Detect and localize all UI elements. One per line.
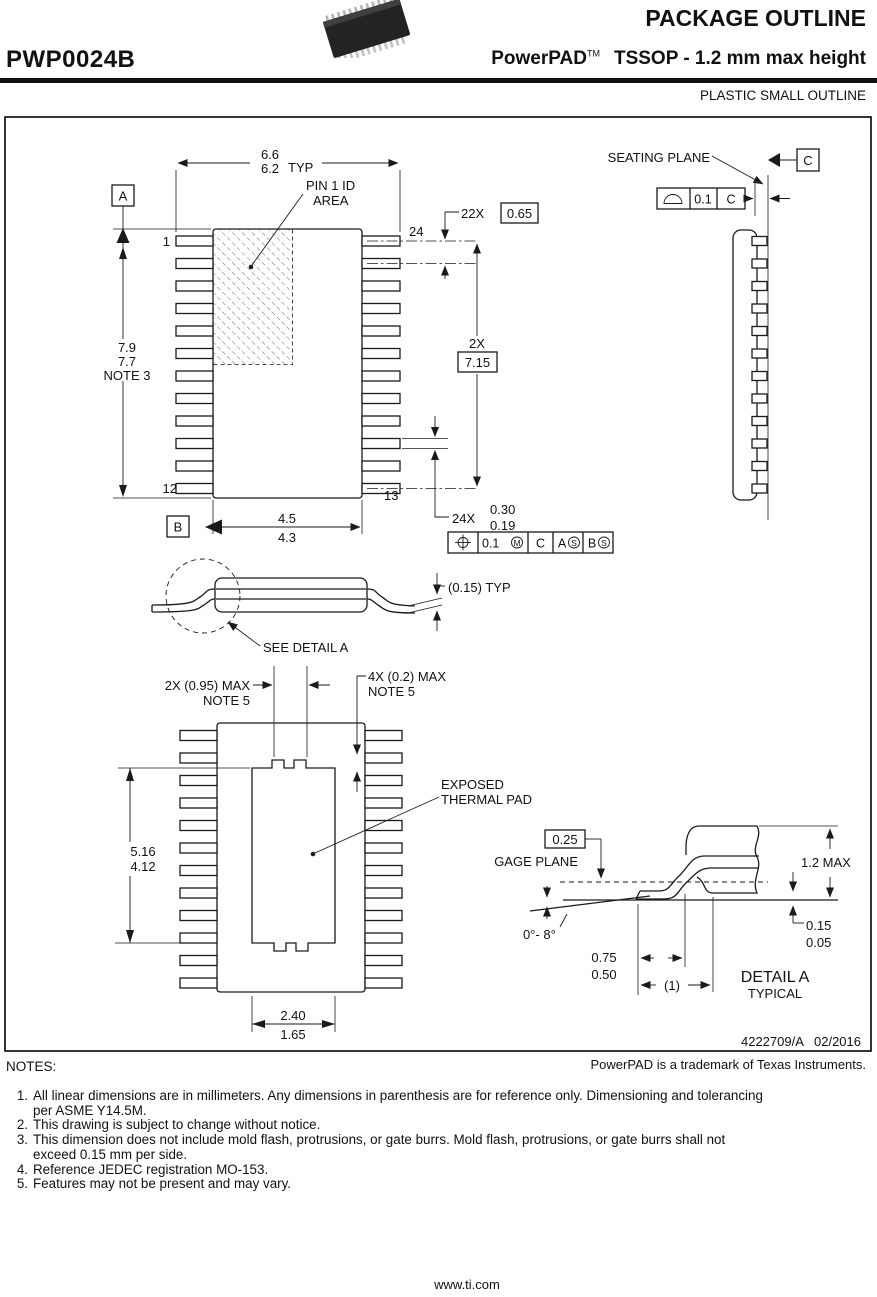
svg-text:6.6: 6.6 <box>261 147 279 162</box>
svg-text:0.1: 0.1 <box>482 537 499 551</box>
svg-text:GAGE PLANE: GAGE PLANE <box>494 854 578 869</box>
svg-text:THERMAL PAD: THERMAL PAD <box>441 792 532 807</box>
svg-text:C: C <box>726 193 735 207</box>
svg-text:B: B <box>174 520 183 535</box>
svg-text:B: B <box>588 537 596 551</box>
svg-text:(1): (1) <box>664 978 680 993</box>
svg-text:AREA: AREA <box>313 193 349 208</box>
svg-text:2X: 2X <box>469 336 485 351</box>
website-link[interactable]: www.ti.com <box>392 1277 542 1292</box>
svg-text:A: A <box>558 537 567 551</box>
dim-gage-offset: 0.25 GAGE PLANE <box>494 830 601 878</box>
position-symbol <box>455 535 471 551</box>
note-row: 5.Features may not be present and may va… <box>8 1177 853 1192</box>
svg-text:4.3: 4.3 <box>278 530 296 545</box>
note-row: 2.This drawing is subject to change with… <box>8 1118 853 1133</box>
svg-text:7.9: 7.9 <box>118 340 136 355</box>
see-detail-a-label: SEE DETAIL A <box>228 622 349 655</box>
svg-text:EXPOSED: EXPOSED <box>441 777 504 792</box>
note-row: 1.All linear dimensions are in millimete… <box>8 1089 853 1104</box>
svg-text:NOTE 5: NOTE 5 <box>368 684 415 699</box>
dim-lead-thickness: (0.15) TYP <box>437 573 511 631</box>
svg-text:A: A <box>119 189 128 204</box>
end-view: SEATING PLANE C 0.1 C <box>608 149 819 520</box>
note-row: 3.This dimension does not include mold f… <box>8 1133 853 1148</box>
svg-text:2.40: 2.40 <box>280 1008 305 1023</box>
side-view: SEE DETAIL A (0.15) TYP <box>152 559 511 655</box>
dim-ref-length: (1) <box>641 897 713 993</box>
note-row: exceed 0.15 mm per side. <box>8 1148 853 1163</box>
top-view: 6.6 6.2 TYP PIN 1 ID AREA A 7.9 7.7 NOTE… <box>104 147 613 553</box>
detail-a-subtitle: TYPICAL <box>748 986 802 1001</box>
notes-list: 1.All linear dimensions are in millimete… <box>8 1089 853 1192</box>
svg-text:1.2 MAX: 1.2 MAX <box>801 855 851 870</box>
svg-text:4X (0.2) MAX: 4X (0.2) MAX <box>368 669 446 684</box>
svg-text:0.05: 0.05 <box>806 935 831 950</box>
modifier-s-icon: S <box>601 538 607 548</box>
pin-1-label: 1 <box>163 234 170 249</box>
svg-text:2X (0.95) MAX: 2X (0.95) MAX <box>165 678 251 693</box>
package-outline-page: { "header": { "drawing_code": "PWP0024B"… <box>0 0 877 1297</box>
seating-plane-label: SEATING PLANE <box>608 150 763 184</box>
datum-a: A 7.9 7.7 NOTE 3 <box>104 185 211 498</box>
detail-a-view: 0.25 GAGE PLANE 0°- 8° 1.2 MAX 0.15 0.05 <box>494 826 851 1001</box>
modifier-s-icon: S <box>571 538 577 548</box>
svg-text:C: C <box>803 153 812 168</box>
position-tolerance-frame: 0.1 M C A S B S <box>448 532 613 553</box>
dim-height: 1.2 MAX <box>759 826 851 897</box>
dim-pad-width: 2.40 1.65 <box>252 996 335 1042</box>
svg-text:0.50: 0.50 <box>591 967 616 982</box>
svg-text:NOTE 5: NOTE 5 <box>203 693 250 708</box>
svg-text:PIN 1 ID: PIN 1 ID <box>306 178 355 193</box>
svg-text:0.1: 0.1 <box>694 193 711 207</box>
top-view-right-pins <box>362 236 400 494</box>
svg-text:22X: 22X <box>461 206 484 221</box>
note-row: per ASME Y14.5M. <box>8 1104 853 1119</box>
dim-standoff: 0.15 0.05 <box>793 872 831 950</box>
svg-text:7.7: 7.7 <box>118 354 136 369</box>
note-row: 4.Reference JEDEC registration MO-153. <box>8 1163 853 1178</box>
doc-number: 4222709/A 02/2016 <box>741 1034 861 1049</box>
svg-text:5.16: 5.16 <box>130 844 155 859</box>
dim-lead-span: 2X 7.15 <box>458 244 497 486</box>
svg-text:0.75: 0.75 <box>591 950 616 965</box>
bottom-view-right-pins <box>365 731 402 989</box>
flatness-tolerance-frame: 0.1 C <box>657 188 790 209</box>
svg-text:TYP: TYP <box>288 160 313 175</box>
svg-text:SEE DETAIL A: SEE DETAIL A <box>263 640 349 655</box>
svg-text:24X: 24X <box>452 511 475 526</box>
svg-text:1.65: 1.65 <box>280 1027 305 1042</box>
dim-lead-width: 24X 0.30 0.19 <box>402 416 515 533</box>
svg-text:4.12: 4.12 <box>130 859 155 874</box>
top-view-left-pins <box>176 236 213 494</box>
flatness-symbol <box>664 195 682 204</box>
bottom-view-left-pins <box>180 731 217 989</box>
trademark-line: PowerPAD is a trademark of Texas Instrum… <box>590 1057 866 1072</box>
datum-c: C <box>768 149 819 171</box>
pin-12-label: 12 <box>163 481 177 496</box>
svg-text:7.15: 7.15 <box>465 355 490 370</box>
pin-24-label: 24 <box>409 224 423 239</box>
detail-a-title: DETAIL A <box>741 969 810 986</box>
svg-text:0°- 8°: 0°- 8° <box>523 927 556 942</box>
bottom-view: EXPOSED THERMAL PAD 2X (0.95) MAX NOTE 5… <box>115 666 532 1042</box>
svg-text:0.30: 0.30 <box>490 502 515 517</box>
dim-angle: 0°- 8° <box>523 886 567 942</box>
svg-text:0.65: 0.65 <box>507 206 532 221</box>
svg-text:(0.15) TYP: (0.15) TYP <box>448 580 511 595</box>
pin-13-label: 13 <box>384 488 398 503</box>
exposed-thermal-pad-outline <box>252 760 335 951</box>
svg-text:0.25: 0.25 <box>552 832 577 847</box>
svg-text:0.15: 0.15 <box>806 918 831 933</box>
modifier-m-icon: M <box>513 538 520 548</box>
datum-b: B 4.5 4.3 <box>167 500 362 545</box>
svg-text:C: C <box>536 537 545 551</box>
svg-text:NOTE 3: NOTE 3 <box>104 368 151 383</box>
svg-text:0.19: 0.19 <box>490 518 515 533</box>
dim-width-typ: 6.6 6.2 TYP <box>176 147 400 232</box>
svg-text:SEATING PLANE: SEATING PLANE <box>608 150 711 165</box>
dim-pitch: 22X 0.65 <box>445 203 538 279</box>
svg-text:6.2: 6.2 <box>261 161 279 176</box>
notes-label: NOTES: <box>6 1059 56 1074</box>
svg-text:4.5: 4.5 <box>278 511 296 526</box>
pin1-id-hatch-area <box>214 230 293 365</box>
